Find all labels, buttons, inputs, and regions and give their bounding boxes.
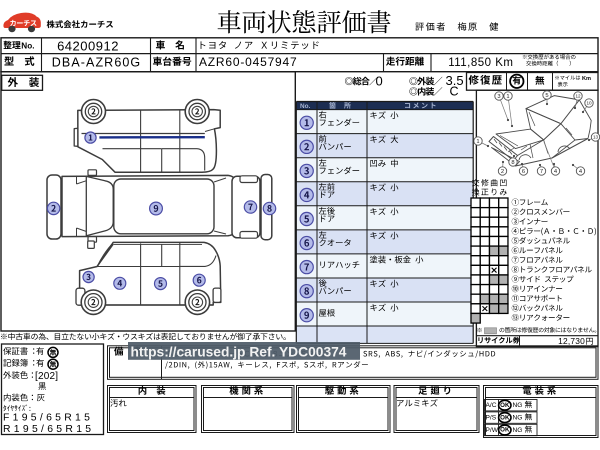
svg-text:https://carused.jp Ref. YDC003: https://carused.jp Ref. YDC00374 <box>131 345 347 360</box>
svg-text:No.: No. <box>300 103 311 110</box>
svg-text:2: 2 <box>501 169 504 175</box>
svg-text:AZR60-0457947: AZR60-0457947 <box>199 55 297 69</box>
svg-text:NG: NG <box>513 427 523 434</box>
svg-text:DBA-AZR60G: DBA-AZR60G <box>52 56 142 70</box>
svg-text:1: 1 <box>506 94 509 100</box>
svg-text:F195/65R15: F195/65R15 <box>3 413 93 424</box>
svg-text:111,850 Km: 111,850 Km <box>448 57 513 69</box>
svg-text:8: 8 <box>511 160 514 166</box>
svg-text:64200912: 64200912 <box>57 39 119 54</box>
svg-text:OK: OK <box>500 427 510 434</box>
svg-text:P/S: P/S <box>486 414 497 421</box>
svg-text:Km: Km <box>582 76 591 82</box>
svg-text:12: 12 <box>575 94 581 99</box>
svg-text:13: 13 <box>593 135 599 140</box>
svg-text:0: 0 <box>376 74 383 89</box>
svg-text:A/C: A/C <box>486 402 497 409</box>
svg-text:10: 10 <box>586 101 592 106</box>
svg-text:C: C <box>450 85 459 99</box>
svg-text:7: 7 <box>540 169 543 175</box>
svg-text:No.: No. <box>21 41 34 50</box>
svg-text:OK: OK <box>500 414 510 421</box>
svg-text:R195/65R15: R195/65R15 <box>3 424 94 435</box>
svg-text:6: 6 <box>522 169 525 175</box>
svg-text:NG: NG <box>513 402 523 409</box>
svg-text:P/W: P/W <box>486 427 499 434</box>
svg-text:[202]: [202] <box>35 371 58 382</box>
svg-text:3: 3 <box>497 94 500 100</box>
svg-text:OK: OK <box>500 402 510 409</box>
svg-text:1: 1 <box>476 139 479 145</box>
svg-text:NG: NG <box>513 415 523 422</box>
svg-text:5: 5 <box>545 93 548 99</box>
svg-text:12,730: 12,730 <box>558 336 585 346</box>
